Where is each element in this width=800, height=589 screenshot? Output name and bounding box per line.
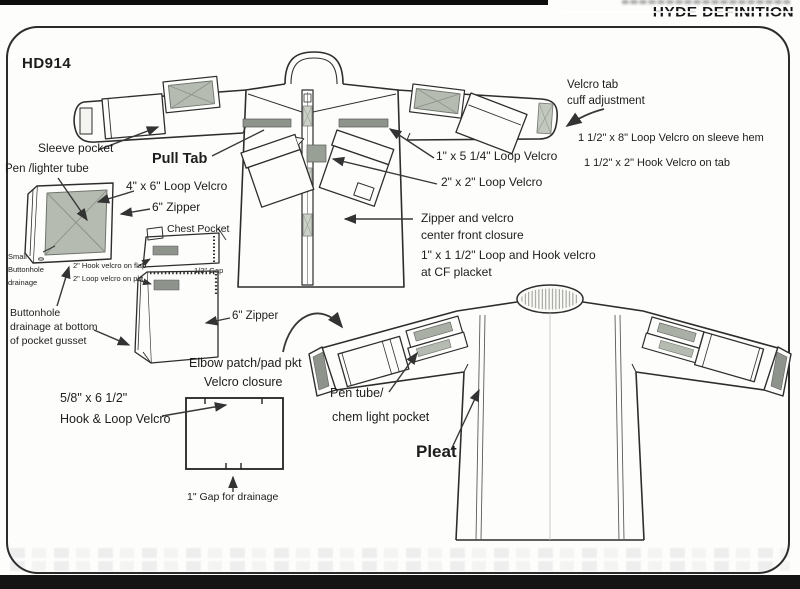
label-half-inch-gap: 1/2" Gap — [194, 265, 223, 278]
top-bar — [0, 0, 548, 5]
label-sleeve-pocket: Sleeve pocket — [38, 140, 113, 157]
label-pen-lighter-tube: Pen /lighter tube — [5, 161, 89, 178]
label-hook-loop-size: 5/8" x 6 1/2" — [60, 389, 127, 407]
label-loop-sleeve-hem: 1 1/2" x 8" Loop Velcro on sleeve hem — [578, 131, 764, 147]
label-zipper-velcro-cf: Zipper and velcro center front closure — [421, 210, 524, 245]
label-small-buttonhole: Small Buttonhole drainage — [8, 251, 44, 289]
back-sleeve-pocket-right — [695, 332, 764, 382]
label-velcro-tab: Velcro tab — [567, 77, 618, 94]
label-pull-tab: Pull Tab — [152, 149, 207, 170]
logo-stencil-slice — [562, 11, 794, 13]
front-pocket-right — [317, 130, 393, 206]
bottom-bar — [0, 575, 800, 589]
ghost-text-band — [10, 548, 790, 558]
sleeve-velcro-patch-right — [410, 84, 465, 118]
cuff-velcro-right — [537, 103, 553, 134]
label-gap-drainage: 1" Gap for drainage — [187, 490, 278, 504]
label-loop-velcro-pkt: 2" Loop velcro on pkt — [73, 273, 143, 286]
sleeve-pocket-left — [102, 94, 165, 139]
garment-drawing — [0, 0, 800, 589]
chest-velcro-strip-left — [243, 119, 291, 127]
label-zipper-6-upper: 6" Zipper — [152, 199, 200, 216]
logo-tagline-blur — [622, 0, 790, 4]
back-sleeve-flap-right — [642, 317, 706, 363]
brand-logo: HYDE DEFINITION — [653, 5, 794, 22]
chest-velcro-strip-right — [339, 119, 388, 127]
label-pleat: Pleat — [416, 440, 457, 465]
elbow-template-diagram — [186, 398, 283, 469]
sleeve-velcro-patch-left — [163, 76, 220, 112]
label-loop-velcro-4x6: 4" x 6" Loop Velcro — [126, 178, 227, 195]
label-hook-velcro-flap: 2" Hook velcro on flap — [73, 260, 146, 273]
label-zipper-6-lower: 6" Zipper — [232, 308, 278, 325]
spec-sheet: HD914 Sleeve pocket Pen /lighter tube Pu… — [0, 0, 800, 589]
label-buttonhole-gusset: Buttonhole drainage at bottom of pocket … — [10, 306, 98, 349]
label-cuff-adjustment: cuff adjustment — [567, 93, 645, 110]
label-loop-1x5: 1" x 5 1/4" Loop Velcro — [436, 148, 557, 165]
label-hook-on-tab: 1 1/2" x 2" Hook Velcro on tab — [584, 156, 730, 172]
label-pen-tube-2: chem light pocket — [332, 408, 429, 426]
label-loop-2x2: 2" x 2" Loop Velcro — [441, 174, 542, 191]
label-velcro-closure: Velcro closure — [204, 373, 283, 391]
label-pen-tube-1: Pen tube/ — [330, 384, 384, 402]
model-code: HD914 — [22, 53, 71, 75]
label-cf-placket: 1" x 1 1/2" Loop and Hook velcro at CF p… — [421, 247, 596, 282]
sleeve-pocket-right — [456, 93, 527, 154]
ghost-text-band — [10, 561, 790, 571]
label-elbow-patch: Elbow patch/pad pkt — [189, 354, 302, 372]
label-hook-loop-velcro: Hook & Loop Velcro — [60, 410, 171, 428]
label-chest-pocket: Chest Pocket — [167, 222, 229, 236]
chest-pocket-diagram — [135, 227, 219, 363]
center-velcro-square — [307, 145, 326, 162]
